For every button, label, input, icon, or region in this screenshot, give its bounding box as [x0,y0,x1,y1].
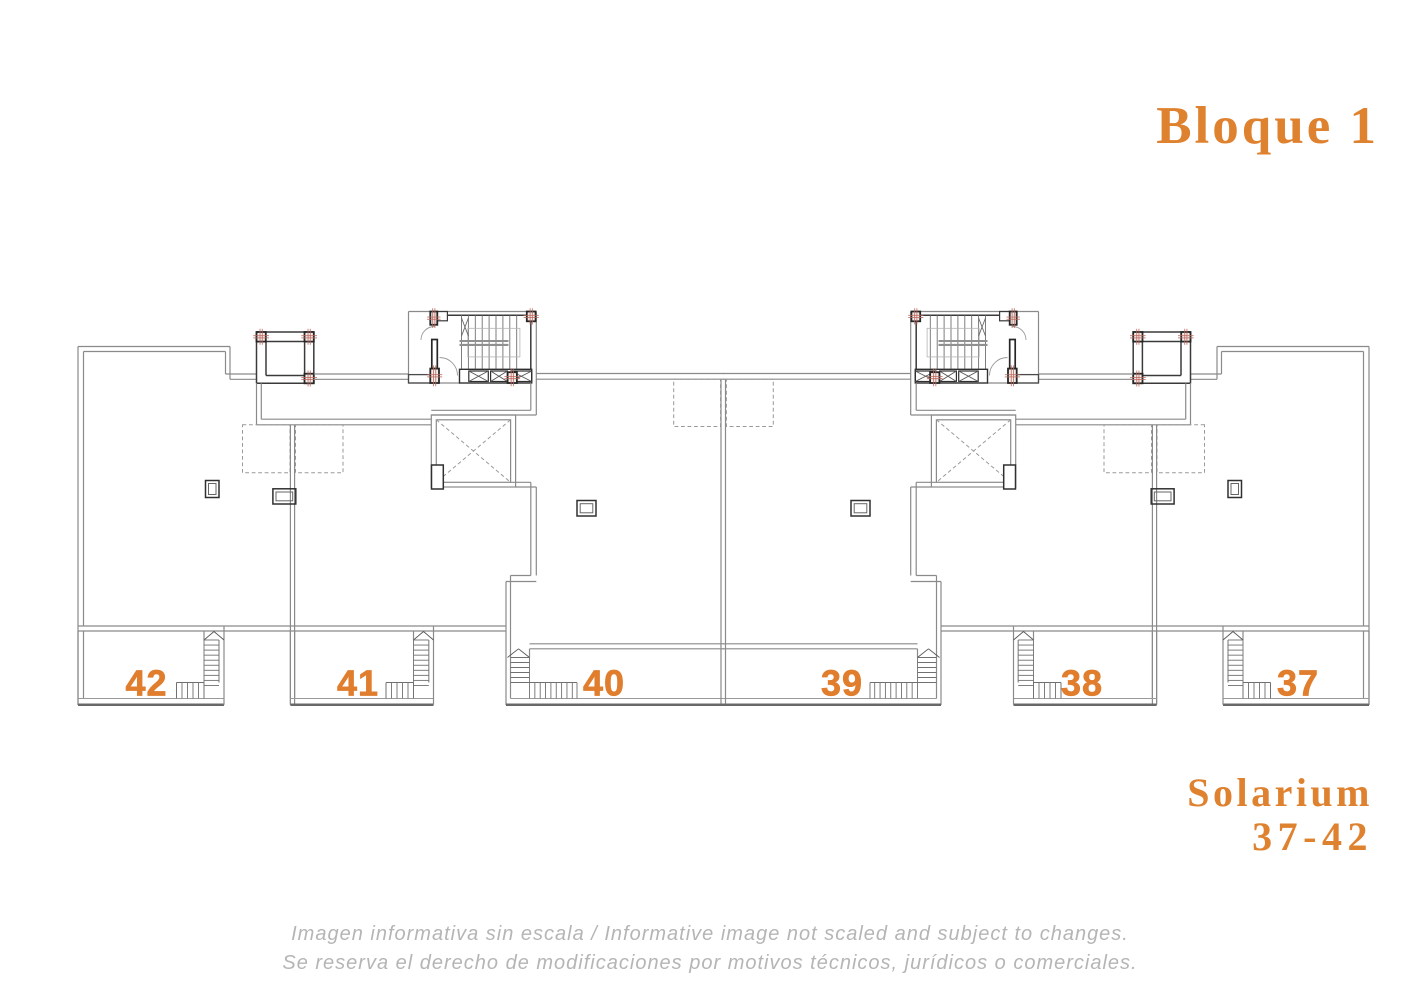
svg-text:38: 38 [1061,663,1103,704]
svg-text:37-42: 37-42 [1252,814,1373,859]
svg-text:Bloque 1: Bloque 1 [1156,97,1379,155]
svg-text:Imagen informativa sin escala: Imagen informativa sin escala / Informat… [291,923,1129,945]
svg-text:39: 39 [821,663,863,704]
svg-text:Solarium: Solarium [1187,770,1373,815]
svg-text:42: 42 [125,663,167,704]
svg-text:Se reserva el derecho de modif: Se reserva el derecho de modificaciones … [282,952,1137,974]
svg-text:37: 37 [1277,663,1319,704]
svg-text:40: 40 [583,663,625,704]
svg-text:41: 41 [337,663,379,704]
